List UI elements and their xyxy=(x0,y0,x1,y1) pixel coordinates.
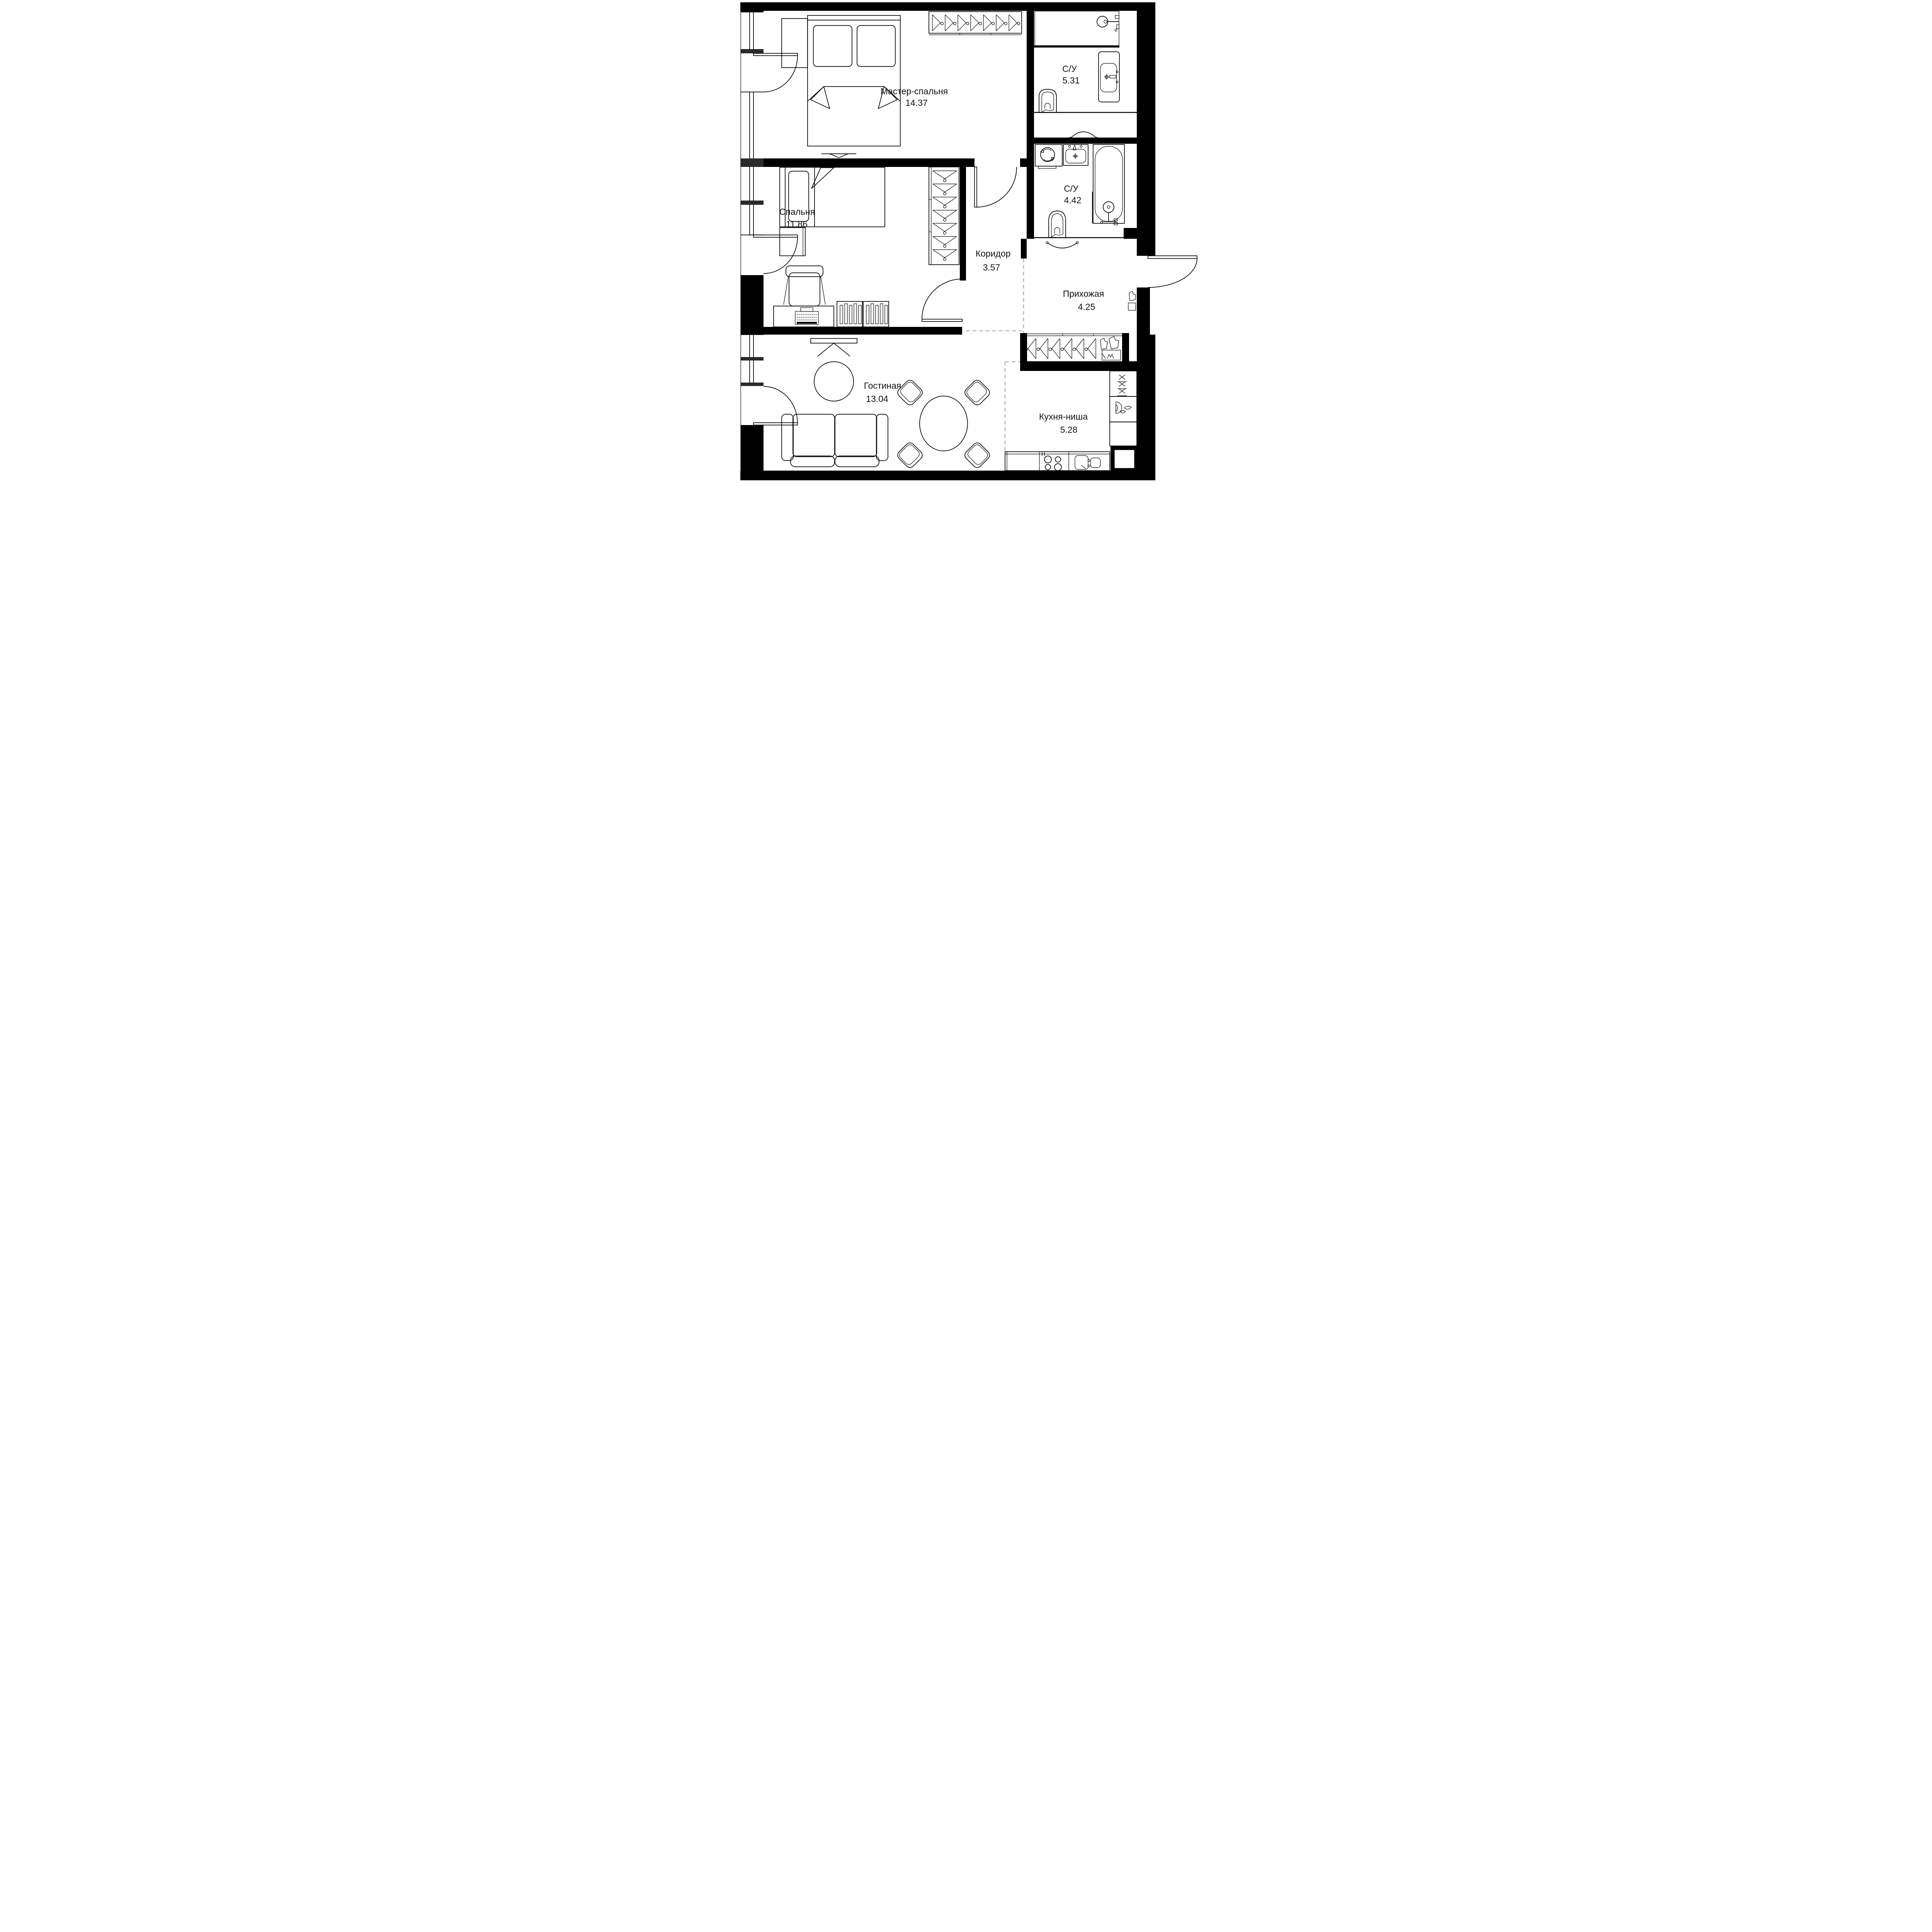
toilet-1 xyxy=(1039,89,1056,112)
label-bathroom-2: С/У xyxy=(1064,184,1078,194)
shower xyxy=(1035,11,1119,46)
area-kitchen-niche: 5.28 xyxy=(1060,425,1078,435)
label-corridor: Коридор xyxy=(976,248,1011,259)
single-bed xyxy=(780,167,885,227)
bedside-table xyxy=(780,228,805,256)
bathroom1-fixtures xyxy=(1035,11,1119,112)
hangers-down xyxy=(933,171,957,261)
window-sill xyxy=(741,49,764,53)
entry-door xyxy=(1148,256,1197,287)
sofa-seat xyxy=(793,414,835,457)
label-bathroom-1: С/У xyxy=(1062,64,1077,74)
window-living-2 xyxy=(750,361,753,383)
floor-plan-page: Мастер-спальня 14.37 С/У 5.31 С/У 4.42 С… xyxy=(734,0,1198,480)
laundry-box-icon xyxy=(1102,350,1121,360)
living-furniture xyxy=(782,338,992,469)
bedroom-wardrobe xyxy=(929,167,959,265)
stove xyxy=(1042,452,1061,471)
entry-shoes xyxy=(1128,291,1136,310)
boots-icon xyxy=(1100,337,1119,349)
pillow xyxy=(813,26,852,66)
area-bathroom-2: 4.42 xyxy=(1064,195,1082,205)
bathroom2-fixtures xyxy=(1035,145,1124,237)
bathtub xyxy=(1092,145,1124,225)
master-door xyxy=(975,167,1017,207)
tv-bench xyxy=(811,338,857,356)
label-kitchen-niche: Кухня-ниша xyxy=(1039,412,1088,422)
bedroom-furniture xyxy=(774,167,959,327)
bathroom2-door xyxy=(1046,241,1078,248)
hangers-left xyxy=(1025,338,1096,359)
label-bedroom: Спальня xyxy=(779,207,815,217)
window-sill xyxy=(741,201,764,205)
window-master-1 xyxy=(741,12,764,49)
area-bedroom: 11.86 xyxy=(786,219,808,229)
room-labels: Мастер-спальня 14.37 С/У 5.31 С/У 4.42 С… xyxy=(779,64,1104,435)
office-chair xyxy=(784,266,825,306)
chair xyxy=(963,378,992,407)
sofa-armrest xyxy=(782,414,793,461)
tall-cabinet-fridge xyxy=(1110,396,1137,422)
zone-boundaries xyxy=(966,259,1024,452)
dining-set xyxy=(896,378,992,469)
sofa-seat xyxy=(835,414,877,457)
bedroom-door xyxy=(922,279,962,321)
window-bedroom-2 xyxy=(741,205,764,235)
area-bathroom-1: 5.31 xyxy=(1063,75,1080,85)
window-living-1 xyxy=(741,335,764,357)
double-bed xyxy=(808,15,900,146)
master-wardrobe xyxy=(929,12,1022,35)
pillow xyxy=(857,26,895,66)
drawer-unit-1 xyxy=(837,301,862,327)
toilet-2 xyxy=(1049,211,1066,237)
chair xyxy=(896,441,924,469)
drawer-unit-2 xyxy=(863,301,889,327)
master-furniture xyxy=(782,12,1022,158)
window-sill xyxy=(741,357,764,361)
round-rug xyxy=(814,362,854,401)
nightstand xyxy=(782,19,808,68)
balcony-door-master xyxy=(753,53,798,92)
hallway-wardrobe xyxy=(1025,334,1122,360)
wall-junction xyxy=(741,158,764,167)
window-bedroom-1 xyxy=(741,167,764,201)
label-hallway: Прихожая xyxy=(1063,289,1104,299)
tall-cabinet-empty xyxy=(1110,422,1137,446)
floor-plan: Мастер-спальня 14.37 С/У 5.31 С/У 4.42 С… xyxy=(734,0,1198,480)
label-master-bedroom: Мастер-спальня xyxy=(881,86,948,96)
tall-cabinet-freezer xyxy=(1110,371,1137,396)
area-living-room: 13.04 xyxy=(866,394,888,404)
washing-machine xyxy=(1035,145,1062,168)
interior-walls xyxy=(764,11,1139,471)
laptop xyxy=(795,308,818,325)
kitchen-sink xyxy=(1075,456,1100,469)
window-sill xyxy=(741,383,764,386)
area-corridor: 3.57 xyxy=(983,262,1000,272)
hangers-right xyxy=(932,15,1020,31)
chair xyxy=(963,441,992,469)
area-master-bedroom: 14.37 xyxy=(905,98,928,108)
sink-2 xyxy=(1063,145,1088,165)
balcony-door-bedroom xyxy=(753,235,798,274)
vanity-sink-1 xyxy=(1099,52,1119,102)
desk xyxy=(774,266,834,327)
sofa-armrest xyxy=(876,414,888,461)
balcony-door-living xyxy=(753,386,798,425)
area-hallway: 4.25 xyxy=(1078,302,1095,312)
wall-tv-master xyxy=(821,154,856,158)
label-living-room: Гостиная xyxy=(864,381,901,391)
exterior-walls xyxy=(740,2,1155,480)
window-master-2 xyxy=(741,92,764,158)
kitchen-counter xyxy=(1005,452,1110,471)
